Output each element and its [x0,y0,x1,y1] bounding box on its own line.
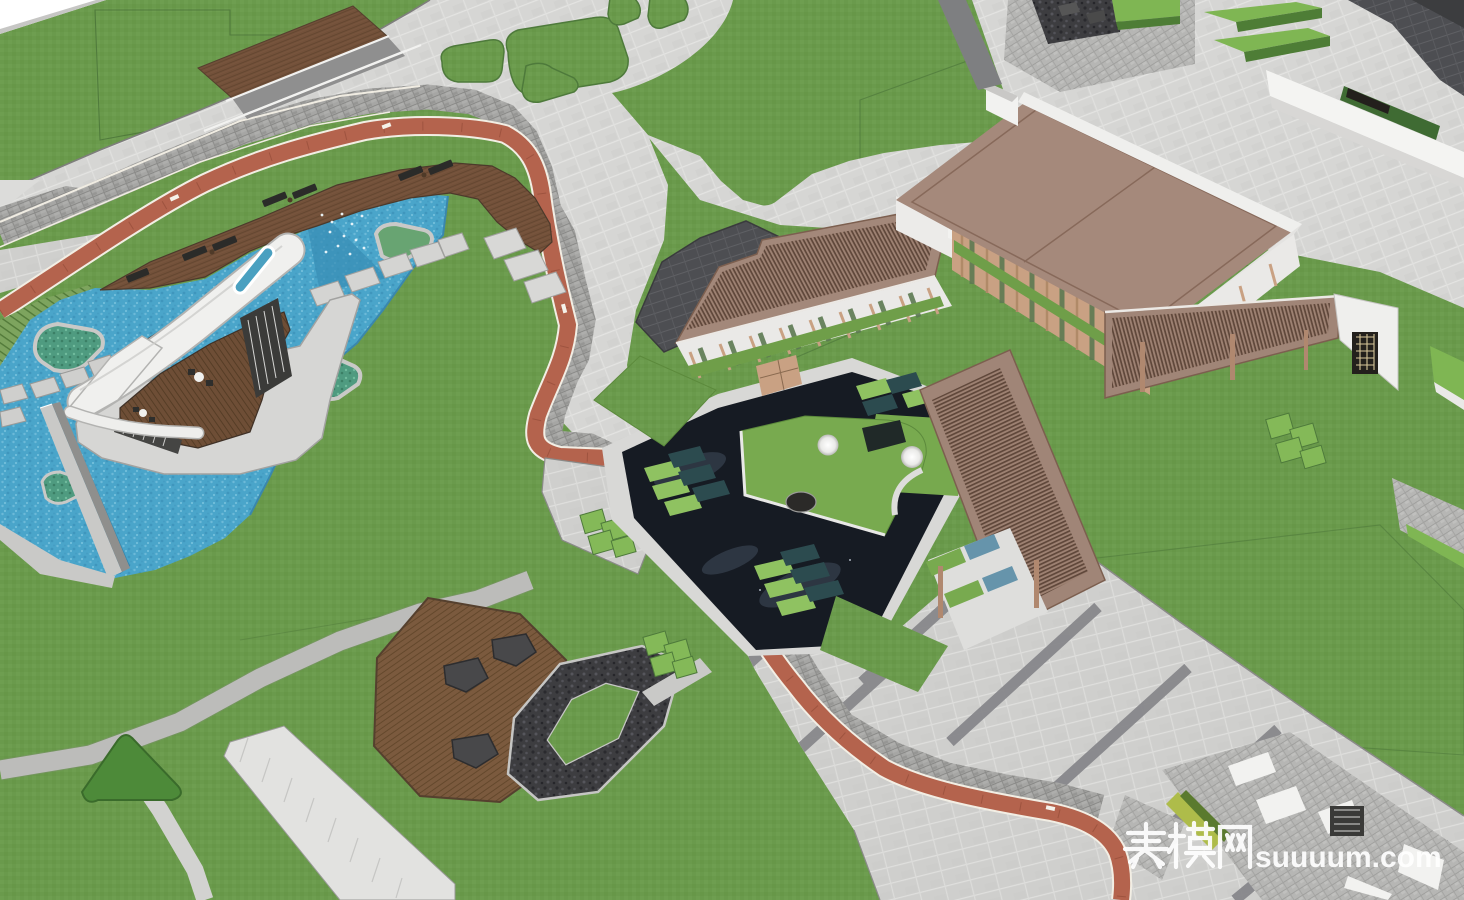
svg-text:suuuum.com: suuuum.com [1255,841,1442,874]
